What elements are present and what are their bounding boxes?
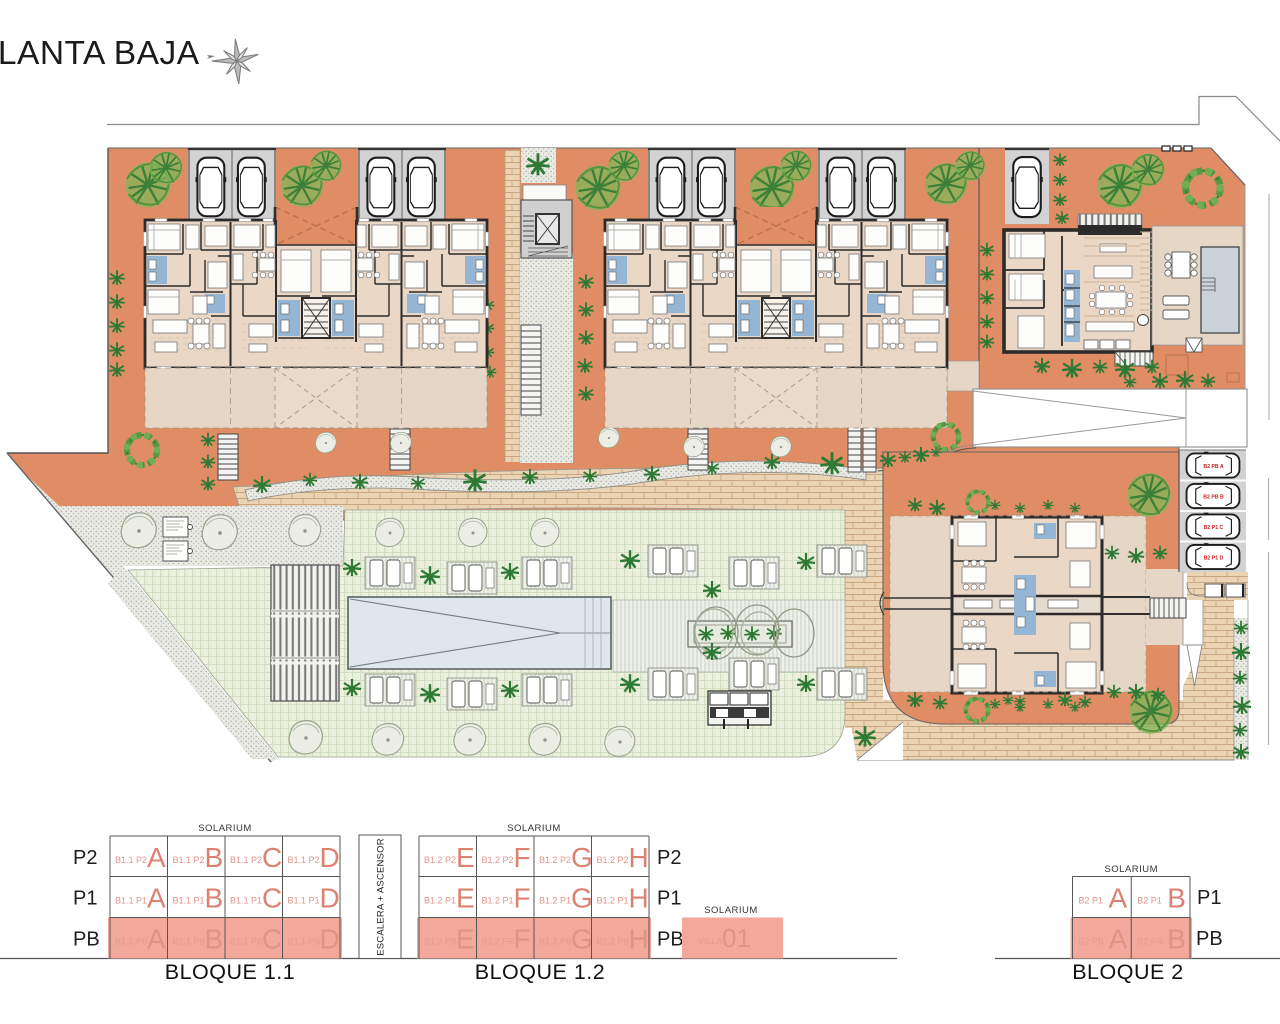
svg-text:B1.1 P2: B1.1 P2 (288, 855, 320, 865)
svg-text:H: H (629, 842, 649, 873)
svg-text:E: E (456, 924, 475, 955)
svg-text:P2: P2 (657, 847, 681, 869)
svg-text:E: E (456, 842, 475, 873)
svg-text:B2 PB B: B2 PB B (1203, 495, 1224, 501)
svg-text:F: F (514, 883, 531, 914)
svg-text:B1.2 P1: B1.2 P1 (482, 896, 514, 906)
svg-text:B1.1 P1: B1.1 P1 (288, 896, 320, 906)
svg-text:B2 PB: B2 PB (1079, 937, 1105, 947)
svg-text:P1: P1 (657, 888, 681, 910)
svg-text:B2 PB A: B2 PB A (1203, 464, 1224, 470)
svg-text:D: D (320, 842, 340, 873)
svg-text:PB: PB (1196, 928, 1223, 950)
svg-text:B2 P1: B2 P1 (1079, 896, 1104, 906)
svg-text:B1.2 P1: B1.2 P1 (539, 896, 571, 906)
svg-text:P1: P1 (1197, 887, 1221, 909)
svg-text:BLOQUE 1.2: BLOQUE 1.2 (475, 960, 605, 984)
svg-text:B1.1 PB: B1.1 PB (288, 937, 321, 947)
svg-text:B1.2 P1: B1.2 P1 (597, 896, 629, 906)
svg-text:G: G (571, 924, 593, 955)
svg-text:PB: PB (657, 929, 684, 951)
svg-text:B1.1 PB: B1.1 PB (115, 937, 148, 947)
svg-text:SOLARIUM: SOLARIUM (507, 823, 561, 834)
svg-text:B2 PB: B2 PB (1137, 937, 1163, 947)
svg-text:B2 P1 C: B2 P1 C (1204, 525, 1224, 531)
svg-text:B1.1 P1: B1.1 P1 (230, 896, 262, 906)
svg-text:A: A (1109, 924, 1128, 955)
svg-text:B1.2 P2: B1.2 P2 (597, 855, 629, 865)
svg-text:G: G (571, 883, 593, 914)
svg-text:G: G (571, 842, 593, 873)
svg-text:PB: PB (73, 929, 100, 951)
svg-text:B1.2 P1: B1.2 P1 (424, 896, 456, 906)
svg-text:A: A (147, 883, 166, 914)
svg-text:C: C (262, 842, 282, 873)
svg-text:F: F (514, 842, 531, 873)
svg-text:B1.2 P2: B1.2 P2 (424, 855, 456, 865)
svg-text:B1.1 P2: B1.1 P2 (173, 855, 205, 865)
svg-text:B1.1 P2: B1.1 P2 (230, 855, 262, 865)
svg-text:B1.2 PB: B1.2 PB (539, 937, 572, 947)
svg-text:01: 01 (722, 923, 751, 953)
svg-text:D: D (320, 883, 340, 914)
svg-text:B1.2 P2: B1.2 P2 (539, 855, 571, 865)
svg-text:B: B (1167, 883, 1186, 914)
svg-text:E: E (456, 883, 475, 914)
svg-text:A: A (1109, 883, 1128, 914)
svg-text:B1.1 PB: B1.1 PB (173, 937, 206, 947)
svg-text:D: D (320, 924, 340, 955)
svg-text:BLOQUE 1.1: BLOQUE 1.1 (165, 960, 295, 984)
svg-text:B1.2 PB: B1.2 PB (424, 937, 457, 947)
svg-text:PLANTA BAJA: PLANTA BAJA (0, 35, 200, 72)
svg-text:VILLA: VILLA (698, 936, 723, 946)
svg-text:P2: P2 (73, 847, 97, 869)
svg-text:C: C (262, 924, 282, 955)
svg-text:P1: P1 (73, 888, 97, 910)
svg-text:SOLARIUM: SOLARIUM (704, 905, 758, 916)
svg-text:B2 P1: B2 P1 (1137, 896, 1162, 906)
svg-text:SOLARIUM: SOLARIUM (1104, 864, 1158, 875)
svg-text:B: B (205, 924, 224, 955)
svg-text:F: F (514, 924, 531, 955)
svg-text:A: A (147, 924, 166, 955)
svg-text:B: B (205, 842, 224, 873)
svg-text:C: C (262, 883, 282, 914)
svg-text:B1.2 PB: B1.2 PB (482, 937, 515, 947)
svg-text:B2 P1 D: B2 P1 D (1204, 556, 1224, 562)
svg-text:B1.1 P2: B1.1 P2 (115, 855, 147, 865)
svg-text:B1.2 P2: B1.2 P2 (482, 855, 514, 865)
svg-text:H: H (629, 924, 649, 955)
svg-text:A: A (147, 842, 166, 873)
svg-text:B1.1 PB: B1.1 PB (230, 937, 263, 947)
svg-text:B1.2 PB: B1.2 PB (597, 937, 630, 947)
svg-text:B: B (1167, 924, 1186, 955)
svg-text:B1.1 P1: B1.1 P1 (173, 896, 205, 906)
svg-text:SOLARIUM: SOLARIUM (198, 823, 252, 834)
svg-text:BLOQUE 2: BLOQUE 2 (1072, 960, 1184, 984)
svg-text:B1.1 P1: B1.1 P1 (115, 896, 147, 906)
svg-text:B: B (205, 883, 224, 914)
svg-text:ESCALERA + ASCENSOR: ESCALERA + ASCENSOR (376, 838, 387, 956)
svg-text:H: H (629, 883, 649, 914)
